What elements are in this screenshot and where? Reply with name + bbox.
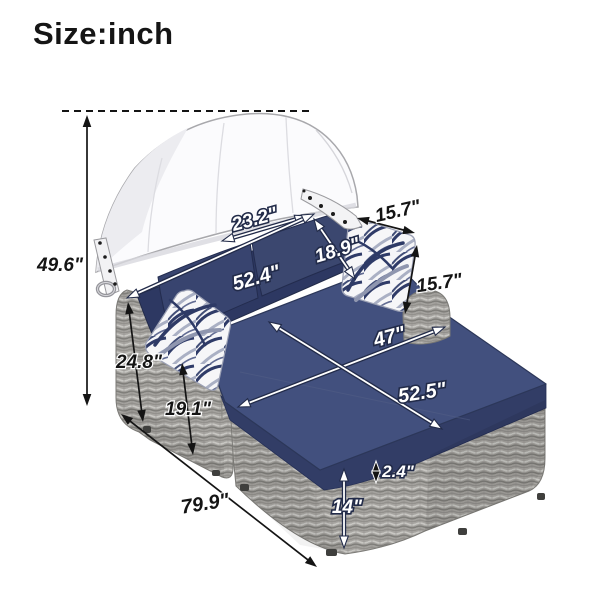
bed-length-label: 79.9" [179,489,231,518]
seat-height-label: 19.1" [165,399,212,420]
pillow-height-label: 15.7" [415,270,464,297]
size-diagram-page: Size:inch [0,0,600,600]
screw-dot [331,212,335,216]
screw-dot [103,255,107,259]
screw-dot [303,190,306,193]
screw-dot [343,220,347,224]
armrest-height-label: 24.8" [115,352,163,373]
overall-height-label: 49.6" [36,255,84,276]
base-height-label: 14" [332,497,363,518]
daybed-illustration [94,114,546,556]
screw-dot [319,204,323,208]
screw-dot [108,269,112,273]
pillow-width-label: 15.7" [373,196,423,227]
screw-dot [98,241,102,245]
cushion-thickness-label: 2.4" [381,462,415,481]
overall-height: 49.6" [36,115,91,406]
screw-dot [308,196,312,200]
daybed-dimension-diagram: 49.6"23.2"52.4"18.9"15.7"15.7"47"52.5"24… [0,0,600,600]
screw-dot [113,282,117,286]
